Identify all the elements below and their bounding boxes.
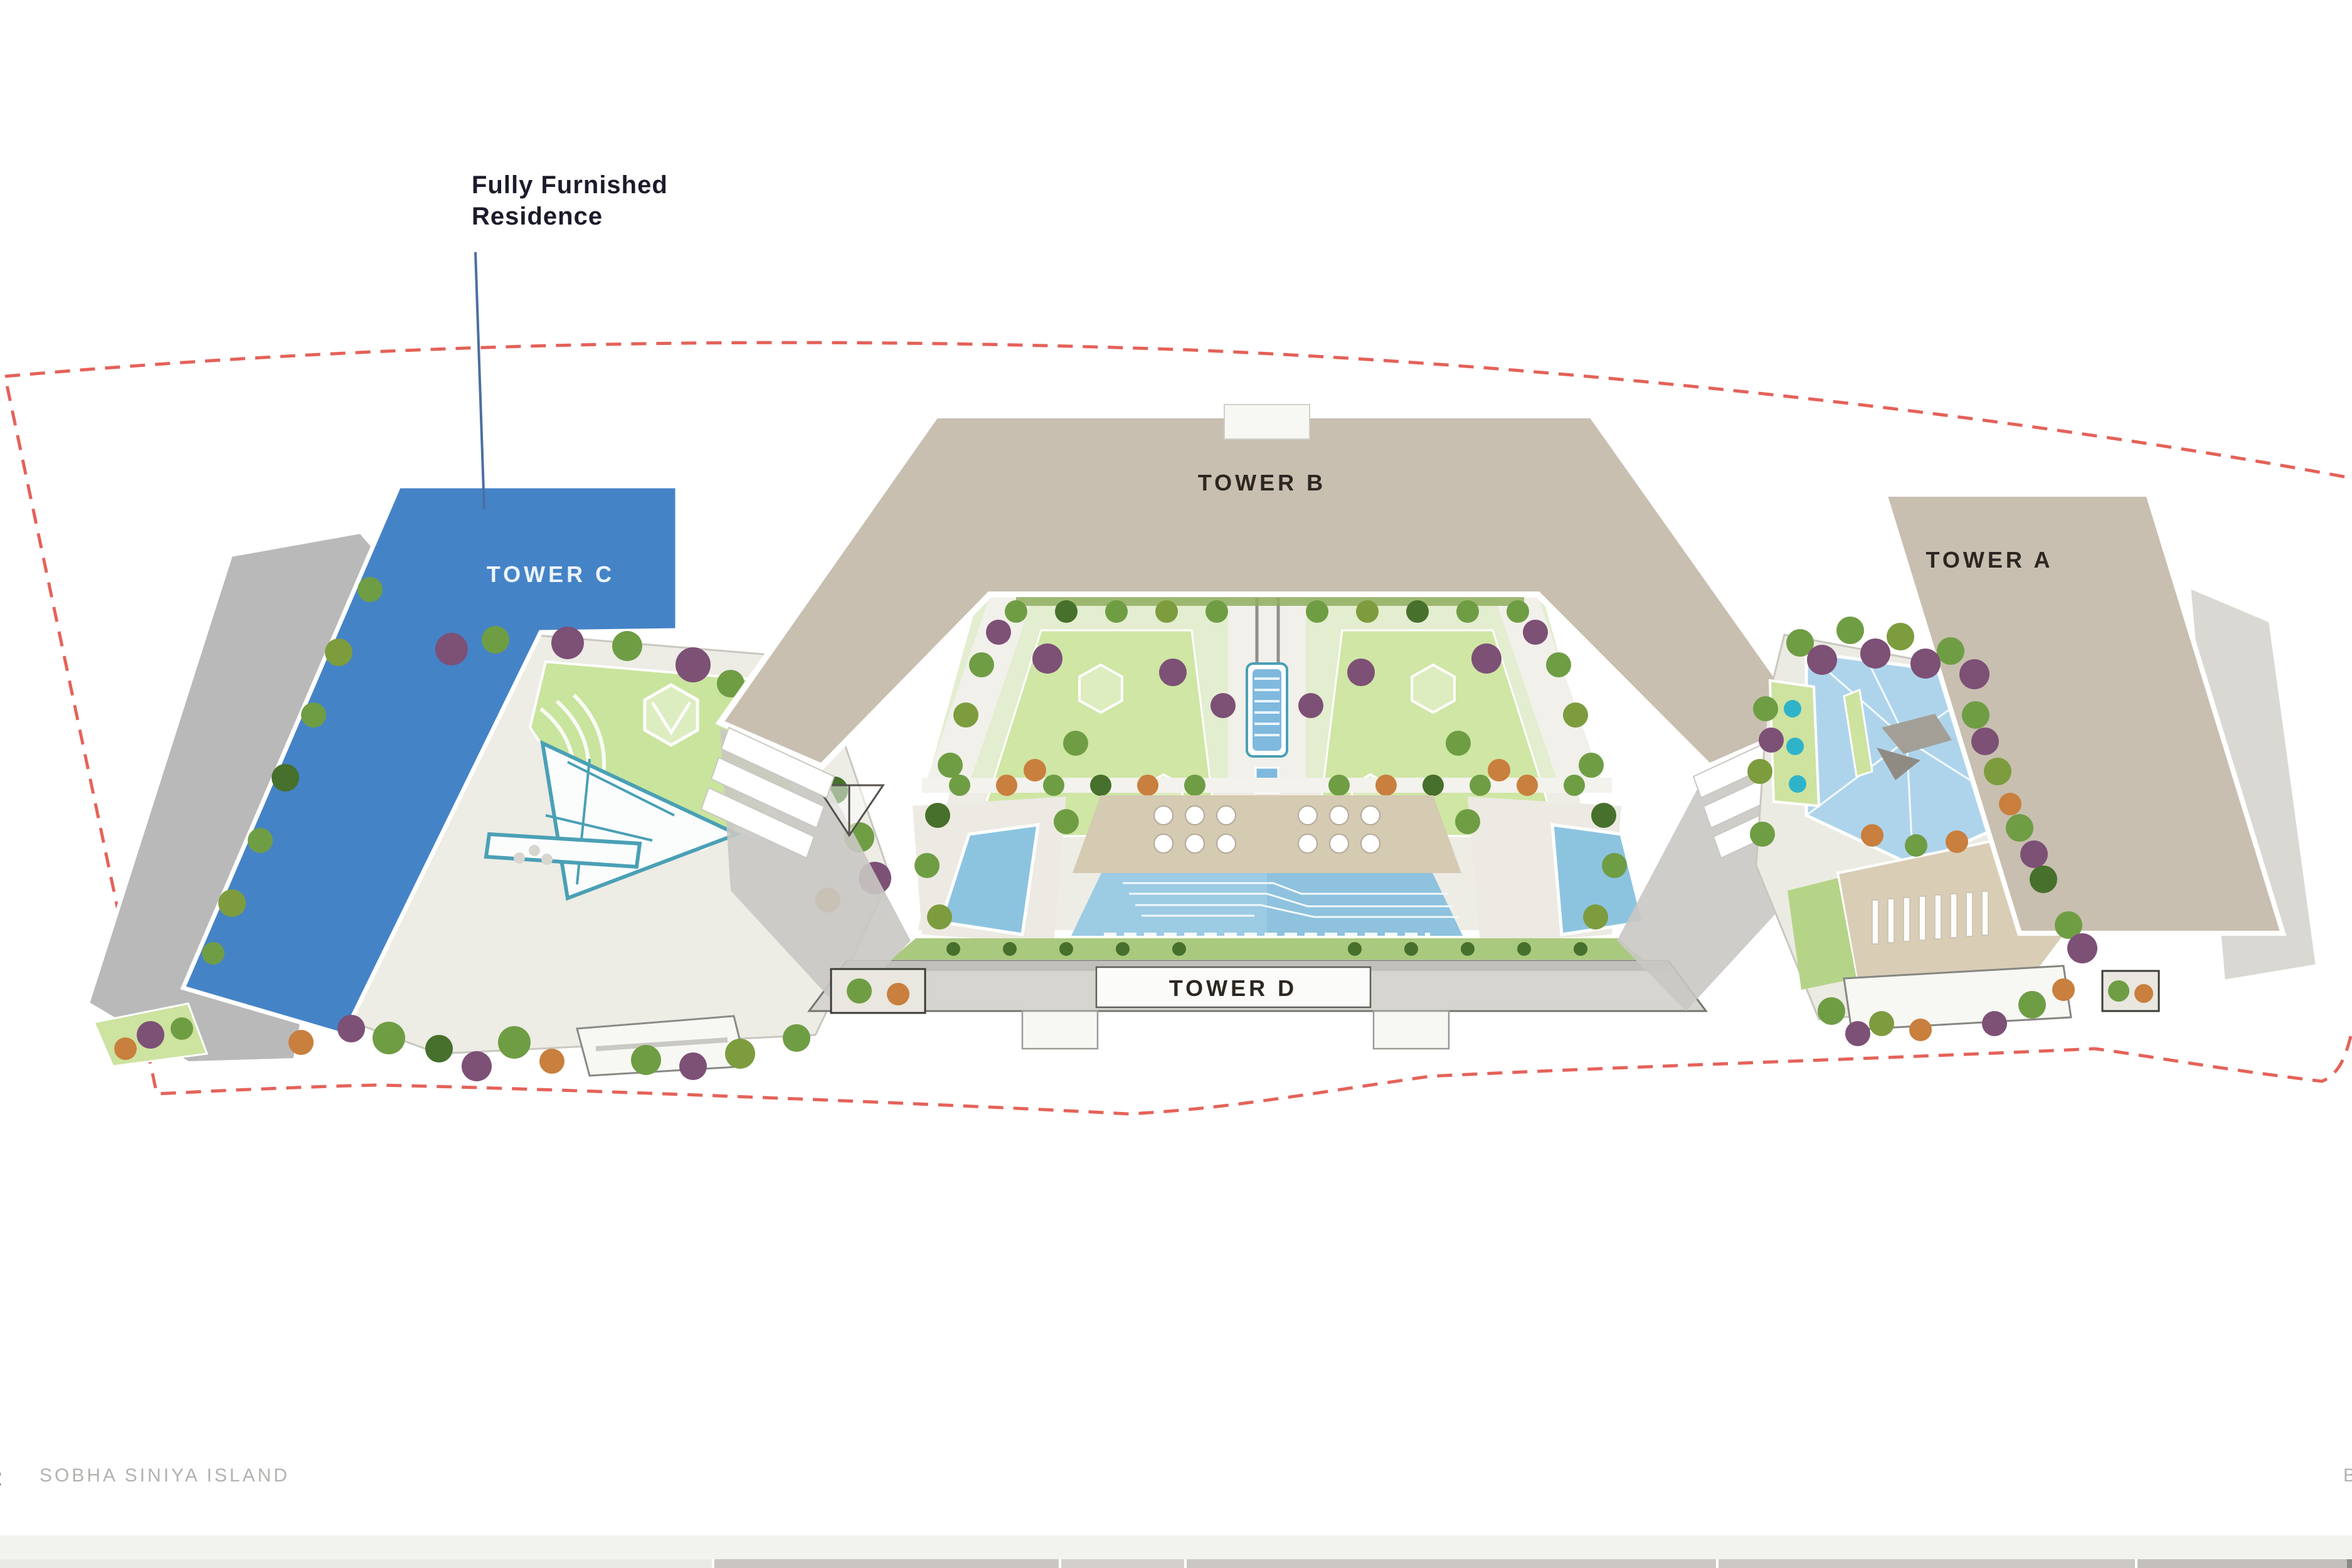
annotation-line2: Residence bbox=[472, 203, 603, 230]
tower-a-cluster bbox=[1747, 494, 2318, 1046]
page-number-partial: 2 bbox=[0, 1466, 2, 1490]
annotation-line1: Fully Furnished bbox=[472, 171, 668, 199]
site-plan-slide: Fully Furnished Residence TOWER C TOWER … bbox=[0, 0, 2352, 1568]
tower-b-d-cluster bbox=[701, 405, 1826, 1049]
canal-water bbox=[1253, 669, 1281, 751]
tower-d-label: TOWER D bbox=[1169, 975, 1297, 1001]
bottom-bands bbox=[0, 1535, 2352, 1568]
footer: 2 SOBHA SINIYA ISLAND B bbox=[0, 1465, 2352, 1490]
tower-b-label: TOWER B bbox=[1198, 470, 1326, 495]
sun-deck bbox=[1073, 795, 1461, 873]
main-pool bbox=[1071, 873, 1463, 936]
annotation-leader-line bbox=[475, 252, 484, 509]
master-plan-canvas: Fully Furnished Residence TOWER C TOWER … bbox=[0, 0, 2352, 1568]
tower-c-label: TOWER C bbox=[487, 561, 615, 587]
annotation-fully-furnished: Fully Furnished Residence bbox=[472, 171, 668, 509]
footer-project-name: SOBHA SINIYA ISLAND bbox=[40, 1465, 290, 1486]
tower-b-entry bbox=[1224, 405, 1310, 439]
tower-a-label: TOWER A bbox=[1926, 547, 2053, 573]
footer-right-partial: B bbox=[2343, 1465, 2352, 1486]
planter-walkway bbox=[922, 778, 1612, 793]
tower-d-building bbox=[809, 961, 1706, 1049]
